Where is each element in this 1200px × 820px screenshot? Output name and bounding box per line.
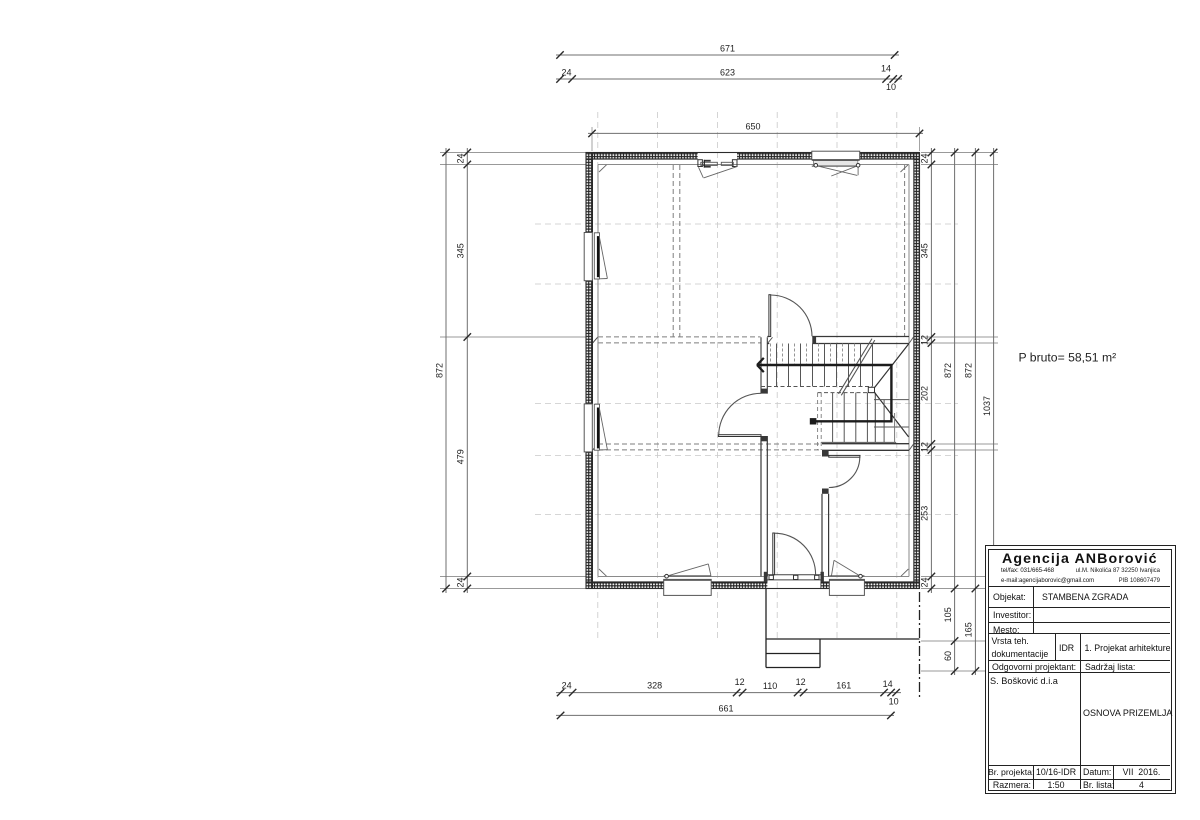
- svg-text:24: 24: [456, 153, 466, 163]
- svg-text:24: 24: [920, 577, 930, 587]
- svg-text:10: 10: [889, 697, 899, 707]
- svg-text:1037: 1037: [982, 396, 992, 416]
- svg-text:24: 24: [561, 68, 571, 78]
- svg-text:661: 661: [718, 703, 733, 713]
- svg-text:161: 161: [836, 681, 851, 691]
- svg-text:253: 253: [920, 506, 930, 521]
- svg-text:14: 14: [883, 679, 893, 689]
- svg-text:328: 328: [647, 681, 662, 691]
- svg-text:12: 12: [920, 335, 930, 345]
- svg-text:872: 872: [964, 363, 974, 378]
- svg-text:202: 202: [920, 386, 930, 401]
- svg-text:872: 872: [435, 363, 445, 378]
- svg-text:12: 12: [920, 442, 930, 452]
- svg-text:24: 24: [920, 153, 930, 163]
- svg-text:12: 12: [735, 677, 745, 687]
- svg-text:110: 110: [763, 681, 777, 691]
- svg-text:24: 24: [562, 681, 572, 691]
- svg-text:14: 14: [881, 64, 891, 74]
- svg-text:P bruto= 58,51 m²: P bruto= 58,51 m²: [1019, 351, 1117, 365]
- svg-text:479: 479: [456, 449, 466, 464]
- svg-text:345: 345: [920, 243, 930, 258]
- svg-text:671: 671: [720, 44, 735, 54]
- svg-text:10: 10: [886, 82, 896, 92]
- svg-text:105: 105: [943, 607, 953, 622]
- svg-text:623: 623: [720, 68, 735, 78]
- svg-text:12: 12: [796, 677, 806, 687]
- svg-text:345: 345: [456, 243, 466, 258]
- svg-text:165: 165: [964, 622, 974, 637]
- svg-text:650: 650: [745, 122, 760, 132]
- svg-text:24: 24: [456, 577, 466, 587]
- svg-text:872: 872: [943, 363, 953, 378]
- svg-text:60: 60: [943, 651, 953, 661]
